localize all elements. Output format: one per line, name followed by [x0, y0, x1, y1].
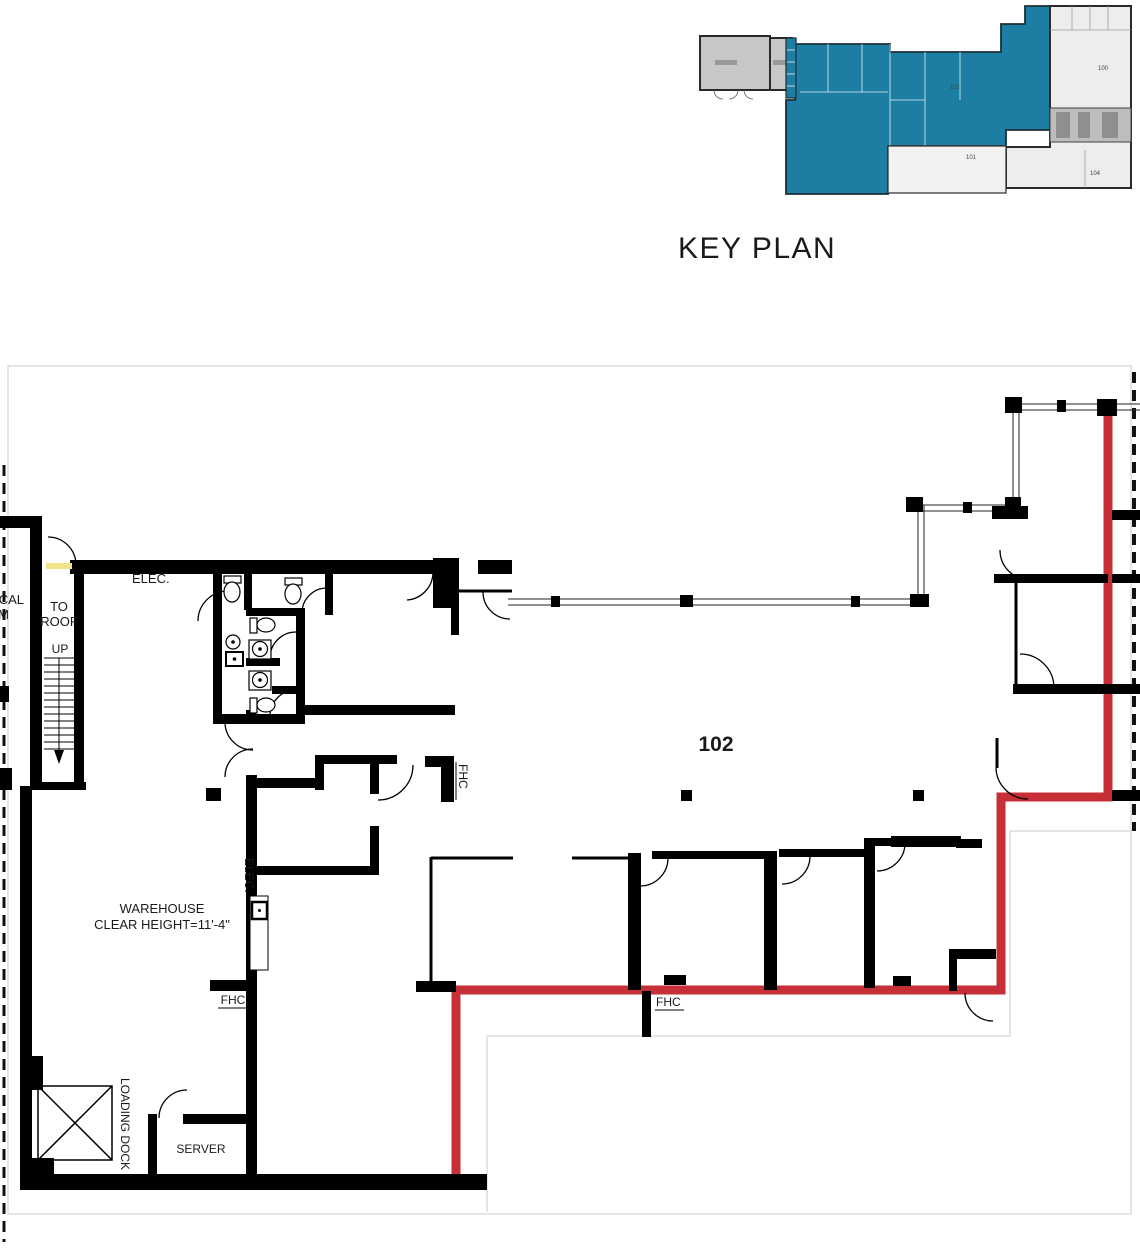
- label-to-roof-1: TO: [50, 599, 68, 614]
- thin-walls: [431, 583, 1016, 988]
- label-edge-cal: CAL: [0, 592, 24, 607]
- svg-text:FHC: FHC: [656, 995, 681, 1009]
- label-elec-vertical: ELEC.: [242, 858, 256, 893]
- key-plan-title: KEY PLAN: [678, 232, 836, 265]
- label-fhc-1: FHC: [456, 762, 470, 800]
- key-room-101: 101: [966, 155, 977, 161]
- svg-text:FHC: FHC: [221, 993, 246, 1007]
- label-warehouse-2: CLEAR HEIGHT=11'-4": [94, 917, 230, 932]
- label-loading-dock: LOADING DOCK: [118, 1078, 132, 1170]
- svg-text:FHC: FHC: [456, 764, 470, 789]
- label-elec-room: ELEC.: [132, 571, 170, 586]
- key-plan: 102 100 101 104 KEY PLAN: [678, 6, 1131, 265]
- label-fhc-2: FHC: [218, 993, 248, 1008]
- floor-plan-drawing: 102 100 101 104 KEY PLAN: [0, 0, 1140, 1248]
- key-plan-building: [700, 36, 792, 99]
- main-plan: CAL M ELEC. TO ROOF UP 102 FHC ELEC. WAR…: [0, 366, 1140, 1242]
- stairs: [44, 658, 74, 764]
- walls: [0, 506, 1140, 1190]
- yellow-door-highlight: [46, 563, 72, 569]
- elec-shaft: [250, 896, 268, 970]
- key-plan-stair-strip: [786, 38, 796, 98]
- red-highlight-outline: [456, 403, 1108, 1181]
- label-warehouse-1: WAREHOUSE: [120, 901, 205, 916]
- label-to-roof-2: ROOF: [40, 614, 78, 629]
- plan-boundary: [8, 366, 1131, 1214]
- key-room-104: 104: [1090, 171, 1101, 177]
- loading-dock-x: [38, 1086, 112, 1160]
- suite-number-label: 102: [698, 733, 733, 756]
- floor-plan-page: 102 100 101 104 KEY PLAN: [0, 0, 1140, 1248]
- label-up: UP: [52, 642, 69, 656]
- label-edge-m: M: [0, 607, 9, 622]
- label-server: SERVER: [176, 1142, 225, 1156]
- key-room-100: 100: [1098, 66, 1109, 72]
- door-arcs: [48, 537, 1054, 1118]
- label-fhc-3: FHC: [655, 995, 684, 1010]
- key-room-102: 102: [950, 85, 961, 91]
- stair-direction-arrow: [54, 750, 64, 764]
